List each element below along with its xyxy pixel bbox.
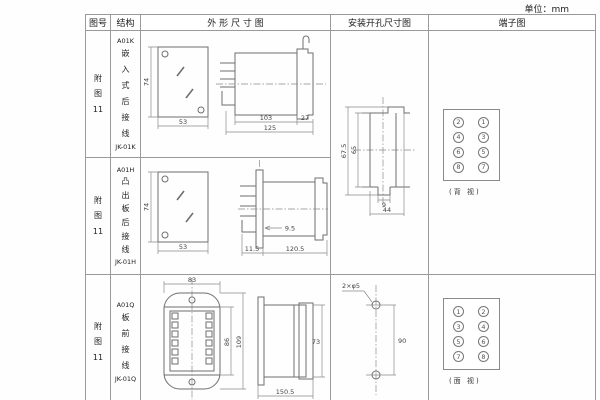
terminal-pin: 4 <box>478 321 489 332</box>
fig-line: 图 <box>94 86 102 101</box>
fig-line: 附 <box>94 193 102 208</box>
terminal-diagram-front: 1 2 3 4 5 6 7 8 <box>443 298 500 370</box>
fig-line: 图 <box>94 208 102 223</box>
structure-line: A01K <box>117 36 134 46</box>
terminal-pin: 7 <box>478 162 489 173</box>
terminal-pin: 1 <box>453 306 464 317</box>
terminal-caption-rear: (背 视) <box>449 187 481 197</box>
structure-line: JK-01K <box>115 142 135 152</box>
outline-drawing-a01h: 74 53 9.5 11.5 120.5 <box>142 158 330 270</box>
structure-line: 线 <box>122 243 130 257</box>
header-fig: 图号 <box>86 15 111 31</box>
dim-body-length: 103 <box>259 114 271 122</box>
fig-line: 附 <box>94 319 102 334</box>
structure-line: 线 <box>122 126 130 142</box>
structure-line: 后 <box>122 216 130 230</box>
terminal-pin: 4 <box>453 132 464 143</box>
dim-cutout-inner: 65 <box>350 145 358 153</box>
structure-line: 接 <box>122 342 130 358</box>
dim-total-length: 125 <box>263 124 275 132</box>
terminal-caption-front: (面 视) <box>449 376 481 386</box>
terminal-pin: 1 <box>478 117 489 128</box>
header-outline: 外 形 尺 寸 图 <box>141 15 331 31</box>
install-cell-q: 2×φ5 90 <box>331 275 429 400</box>
header-install: 安装开孔尺寸图 <box>331 15 429 31</box>
outline-cell-a01h: 74 53 9.5 11.5 120.5 <box>141 158 331 275</box>
fig-cell-a01q: 附 图 11 <box>86 275 111 400</box>
fig-cell-a01h: 附 图 11 <box>86 158 111 275</box>
outline-cell-a01q: 83 86 109 73 150.5 <box>141 275 331 400</box>
structure-line: A01Q <box>117 300 135 310</box>
terminal-cell-q: 1 2 3 4 5 6 7 8 (面 视) <box>429 275 596 400</box>
structure-cell-a01k: A01K 嵌 入 式 后 接 线 JK-01K <box>111 31 141 158</box>
install-cell-kh: 67.5 65 9 44 <box>331 31 429 275</box>
structure-line: 前 <box>122 326 130 342</box>
structure-line: 嵌 <box>122 46 130 62</box>
structure-line: JK-01H <box>115 257 136 267</box>
fig-line: 附 <box>94 71 102 86</box>
structure-line: 线 <box>122 358 130 374</box>
fig-cell-a01k: 附 图 11 <box>86 31 111 158</box>
terminal-pin: 5 <box>453 336 464 347</box>
dim-front-height: 74 <box>142 78 150 86</box>
terminal-pin: 8 <box>453 162 464 173</box>
structure-line: 板 <box>122 310 130 326</box>
dim-cutout-width: 44 <box>382 206 390 214</box>
structure-line: 凸 <box>122 175 130 189</box>
dim-side-length: 150.5 <box>275 388 294 396</box>
spec-sheet-page: 单位：mm 图号 结构 外 形 尺 寸 图 安装开孔尺寸图 端子图 附 图 11 <box>0 0 600 400</box>
structure-cell-a01q: A01Q 板 前 接 线 JK-01Q <box>111 275 141 400</box>
terminal-pin: 6 <box>453 147 464 158</box>
dim-cutout-outer: 67.5 <box>340 143 348 157</box>
dim-inner-height: 86 <box>223 338 231 346</box>
dim-front-height: 74 <box>142 203 150 211</box>
hole-callout: 2×φ5 <box>342 282 360 290</box>
structure-line: 接 <box>122 230 130 244</box>
header-row: 图号 结构 外 形 尺 寸 图 安装开孔尺寸图 端子图 <box>86 15 596 31</box>
dim-hole-pitch: 90 <box>398 337 406 345</box>
terminal-pin: 2 <box>478 306 489 317</box>
dim-front-width: 83 <box>187 276 195 284</box>
fig-line: 11 <box>93 224 103 239</box>
structure-line: 后 <box>122 94 130 110</box>
structure-line: 出 <box>122 189 130 203</box>
structure-line: 板 <box>122 202 130 216</box>
install-drawing-q: 2×φ5 90 <box>332 275 428 400</box>
structure-line: JK-01Q <box>115 374 136 384</box>
row-a01q: 附 图 11 A01Q 板 前 接 线 JK-01Q <box>86 275 596 400</box>
dim-side-height: 73 <box>311 338 319 346</box>
structure-line: A01H <box>117 165 135 175</box>
dim-total-length: 120.5 <box>285 245 304 253</box>
terminal-pin: 7 <box>453 351 464 362</box>
terminal-pin: 2 <box>453 117 464 128</box>
structure-cell-a01h: A01H 凸 出 板 后 接 线 JK-01H <box>111 158 141 275</box>
spec-table: 图号 结构 外 形 尺 寸 图 安装开孔尺寸图 端子图 附 图 11 A01K … <box>85 14 596 400</box>
terminal-pin: 3 <box>453 321 464 332</box>
fig-line: 图 <box>94 334 102 349</box>
dim-flange: 27 <box>300 114 308 122</box>
terminal-pin: 3 <box>478 132 489 143</box>
header-terminal: 端子图 <box>429 15 596 31</box>
structure-line: 入 <box>122 62 130 78</box>
terminal-pin: 5 <box>478 147 489 158</box>
dim-total-height: 109 <box>235 336 243 348</box>
terminal-pin: 8 <box>478 351 489 362</box>
structure-line: 式 <box>122 78 130 94</box>
terminal-diagram-rear: 2 1 4 3 6 5 8 7 <box>443 109 500 181</box>
outline-cell-a01k: 74 53 103 27 125 <box>141 31 331 158</box>
outline-drawing-a01q: 83 86 109 73 150.5 <box>142 275 330 400</box>
dim-flange-offset: 9.5 <box>284 225 294 233</box>
outline-drawing-a01k: 74 53 103 27 125 <box>142 31 330 153</box>
fig-line: 11 <box>93 102 103 117</box>
dim-pin-length: 11.5 <box>244 245 258 253</box>
dim-front-width: 53 <box>178 118 186 126</box>
fig-line: 11 <box>93 350 103 365</box>
row-a01k: 附 图 11 A01K 嵌 入 式 后 接 线 JK-01K <box>86 31 596 158</box>
dim-front-width: 53 <box>178 243 186 251</box>
header-structure: 结构 <box>111 15 141 31</box>
terminal-cell-kh: 2 1 4 3 6 5 8 7 (背 视) <box>429 31 596 275</box>
terminal-pin: 6 <box>478 336 489 347</box>
structure-line: 接 <box>122 110 130 126</box>
install-drawing-kh: 67.5 65 9 44 <box>332 83 428 219</box>
